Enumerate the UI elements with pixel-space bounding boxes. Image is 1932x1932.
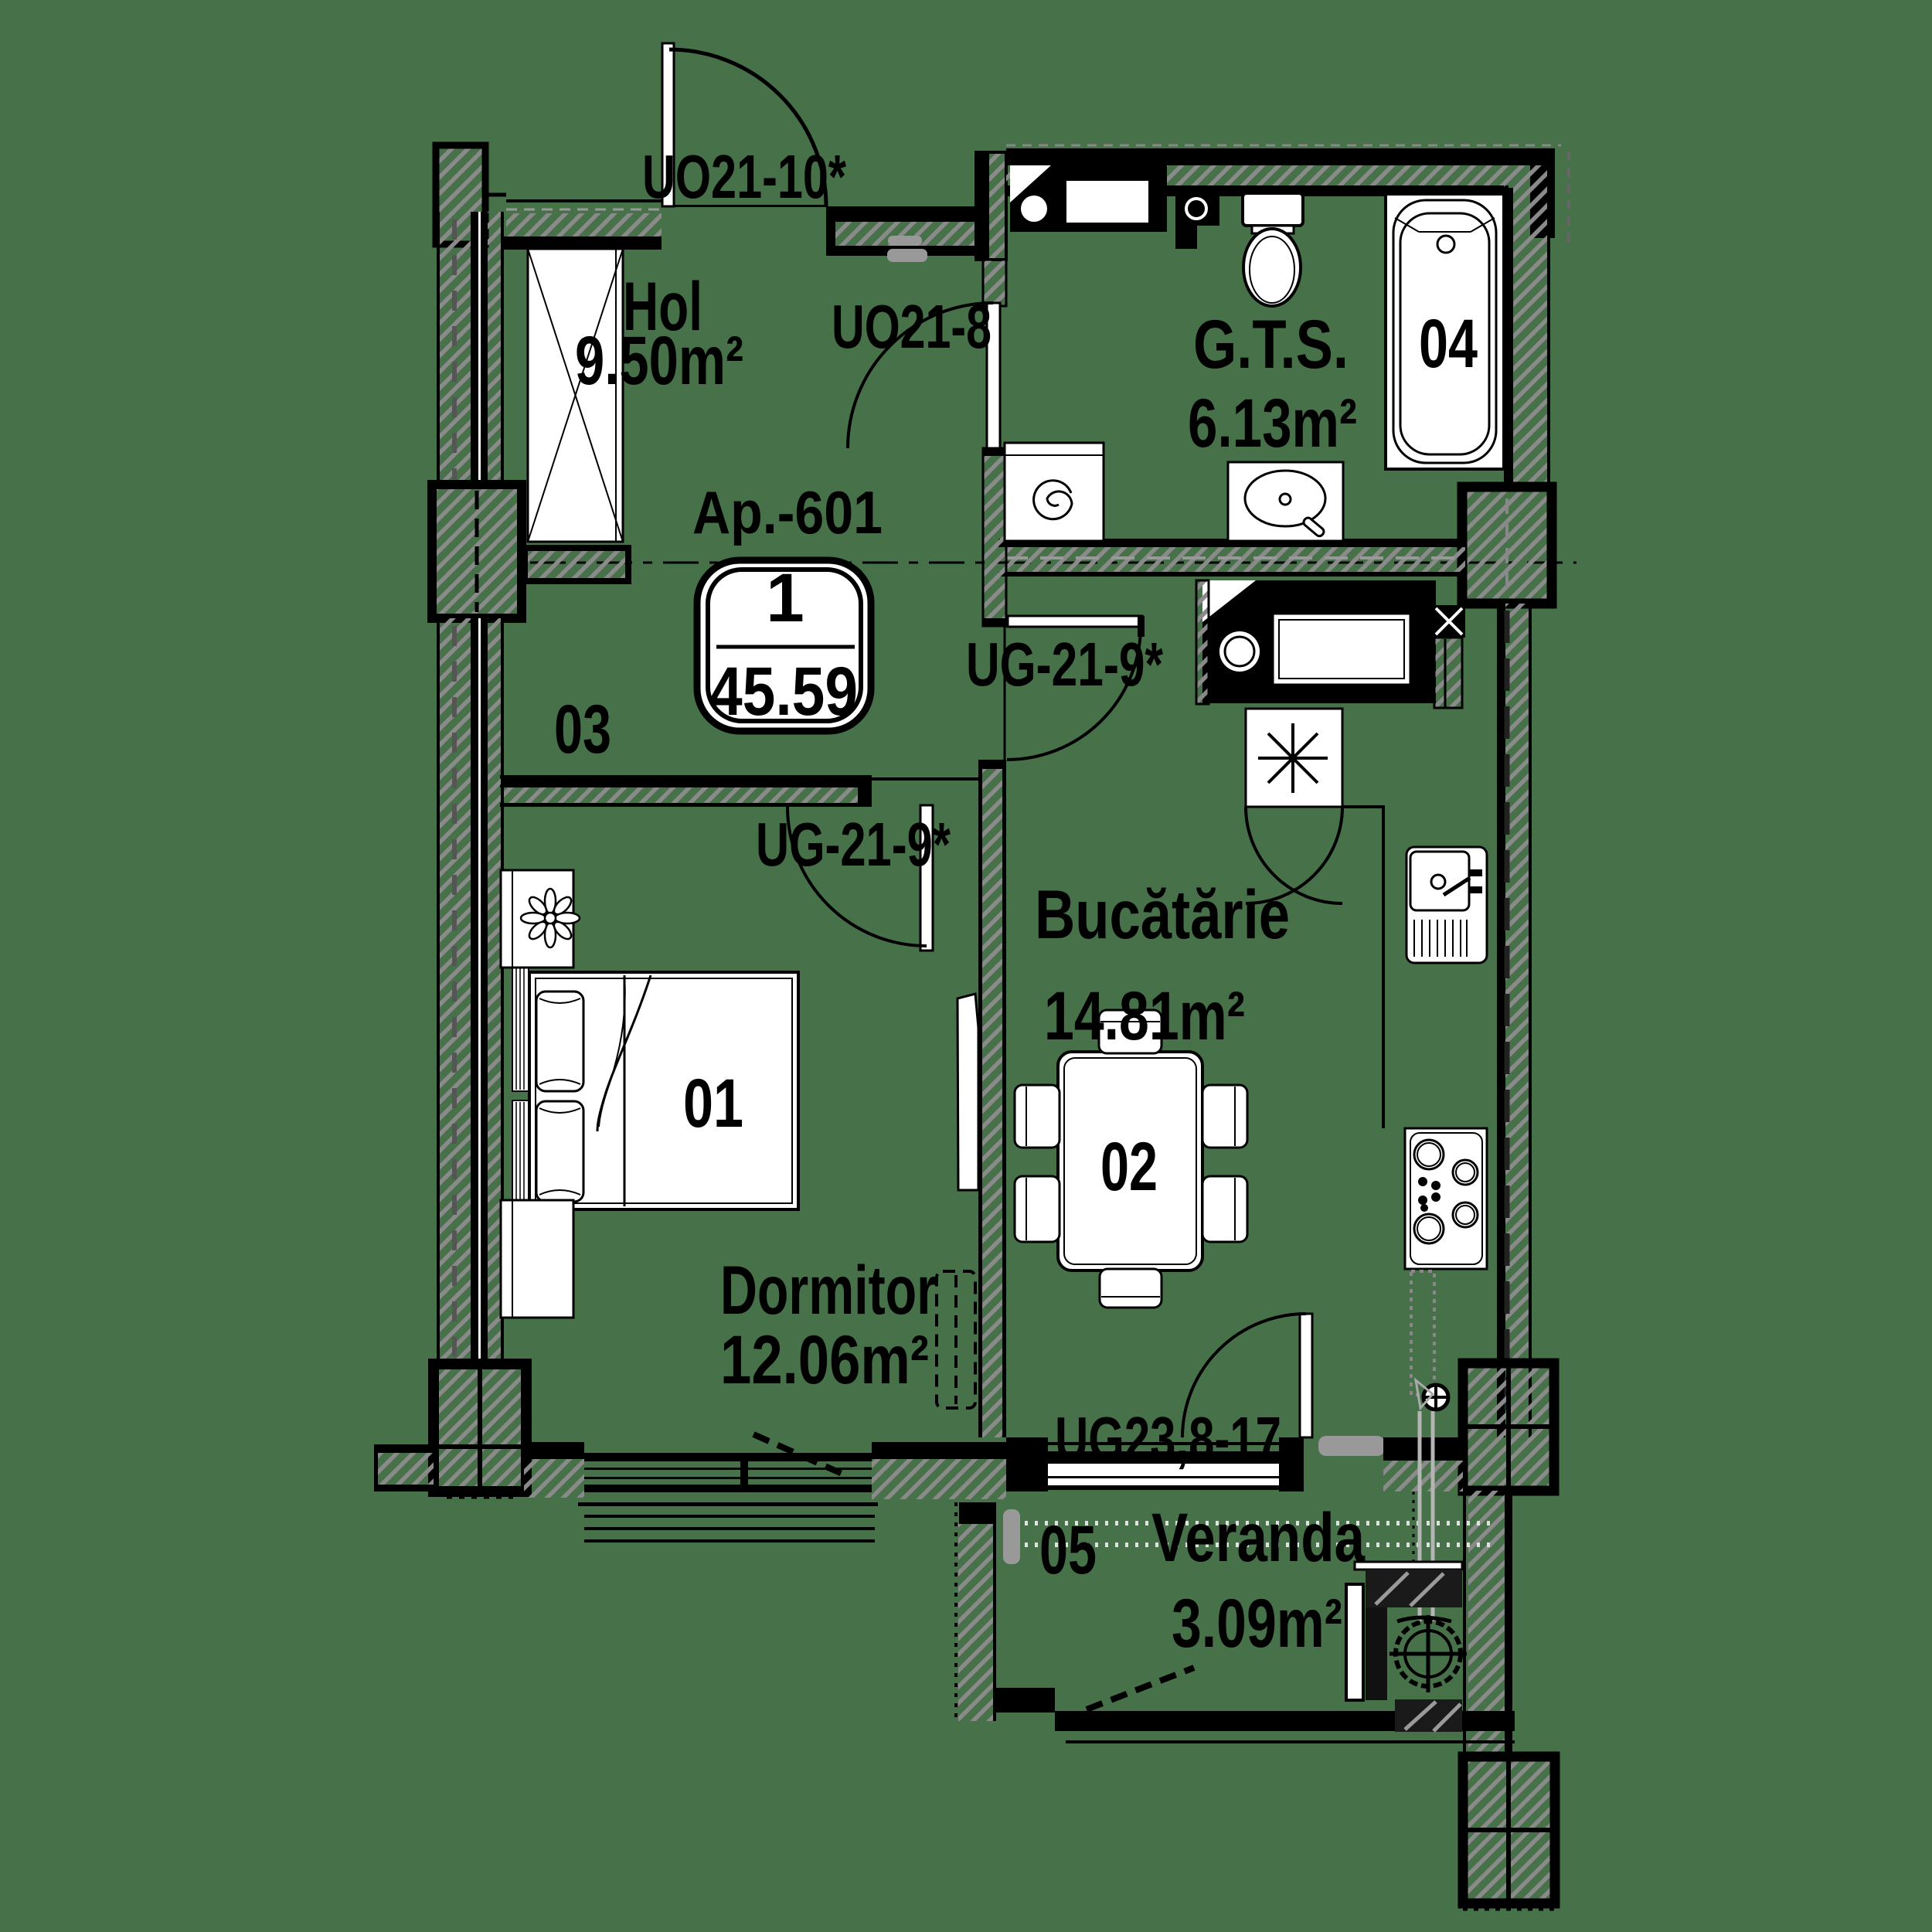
svg-text:45.59: 45.59	[709, 652, 858, 730]
svg-text:12.06m²: 12.06m²	[720, 1321, 929, 1398]
svg-text:14.81m²: 14.81m²	[1044, 977, 1245, 1054]
svg-text:05: 05	[1039, 1511, 1097, 1588]
svg-text:03: 03	[554, 690, 611, 767]
svg-text:UG-21-9*: UG-21-9*	[966, 630, 1164, 699]
svg-text:G.T.S.: G.T.S.	[1193, 305, 1349, 383]
svg-text:9.50m²: 9.50m²	[575, 321, 743, 399]
svg-text:01: 01	[683, 1064, 743, 1141]
svg-text:Veranda: Veranda	[1151, 1498, 1366, 1576]
svg-text:Dormitor: Dormitor	[720, 1251, 937, 1328]
svg-text:3.09m²: 3.09m²	[1172, 1584, 1342, 1662]
svg-text:04: 04	[1419, 304, 1478, 382]
svg-text:6.13m²: 6.13m²	[1188, 384, 1357, 461]
svg-text:Bucătărie: Bucătărie	[1035, 876, 1290, 953]
svg-text:UG-21-9*: UG-21-9*	[756, 810, 951, 879]
svg-text:02: 02	[1100, 1128, 1158, 1205]
svg-text:1: 1	[766, 559, 804, 636]
svg-text:UO21-10*: UO21-10*	[642, 142, 847, 211]
svg-text:UG23,8-17: UG23,8-17	[1055, 1404, 1281, 1473]
svg-text:UO21-8: UO21-8	[832, 292, 992, 361]
svg-text:Ap.-601: Ap.-601	[692, 478, 883, 546]
